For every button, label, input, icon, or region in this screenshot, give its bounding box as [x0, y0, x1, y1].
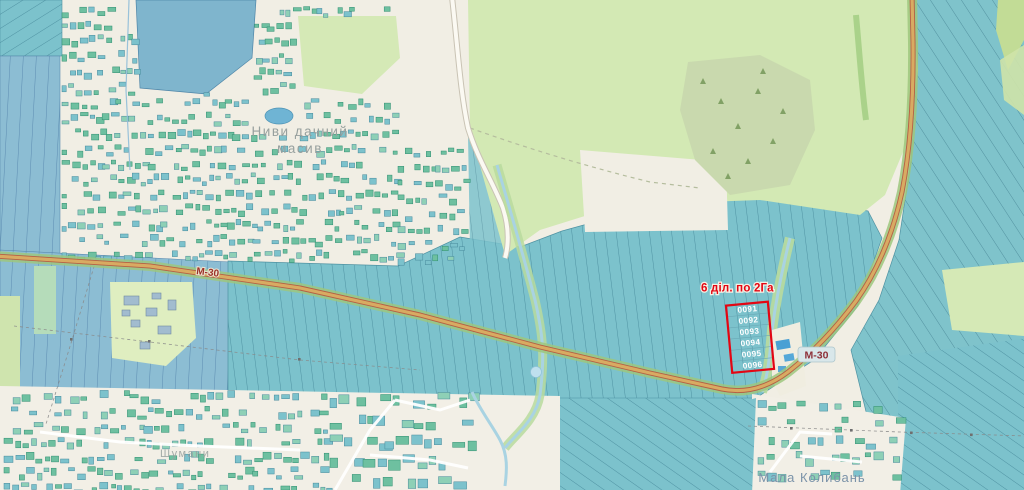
massif-label-line2: масив: [277, 141, 323, 156]
parcel-number-2[interactable]: 0092: [738, 315, 759, 326]
road-label-m30-east: М-30: [805, 350, 829, 362]
parcel-number-6[interactable]: 0096: [742, 360, 763, 371]
map-canvas[interactable]: 0091 0092 0093 0094 0095 0096 6 діл. по …: [0, 0, 1024, 490]
village-label-mala-kolyban: Мала Колибань: [758, 470, 865, 485]
parcel-number-1[interactable]: 0091: [737, 304, 758, 315]
map-viewport[interactable]: 0091 0092 0093 0094 0095 0096 6 діл. по …: [0, 0, 1024, 490]
parcel-number-4[interactable]: 0094: [740, 338, 761, 349]
annotation-title: 6 діл. по 2Га: [701, 283, 774, 295]
village-label-shumany: Шумани: [160, 448, 210, 460]
massif-label-line1: Ниви дачний: [252, 124, 349, 139]
pond: [265, 108, 293, 124]
parcel-number-5[interactable]: 0095: [741, 349, 762, 360]
parcel-number-3[interactable]: 0093: [739, 326, 760, 337]
